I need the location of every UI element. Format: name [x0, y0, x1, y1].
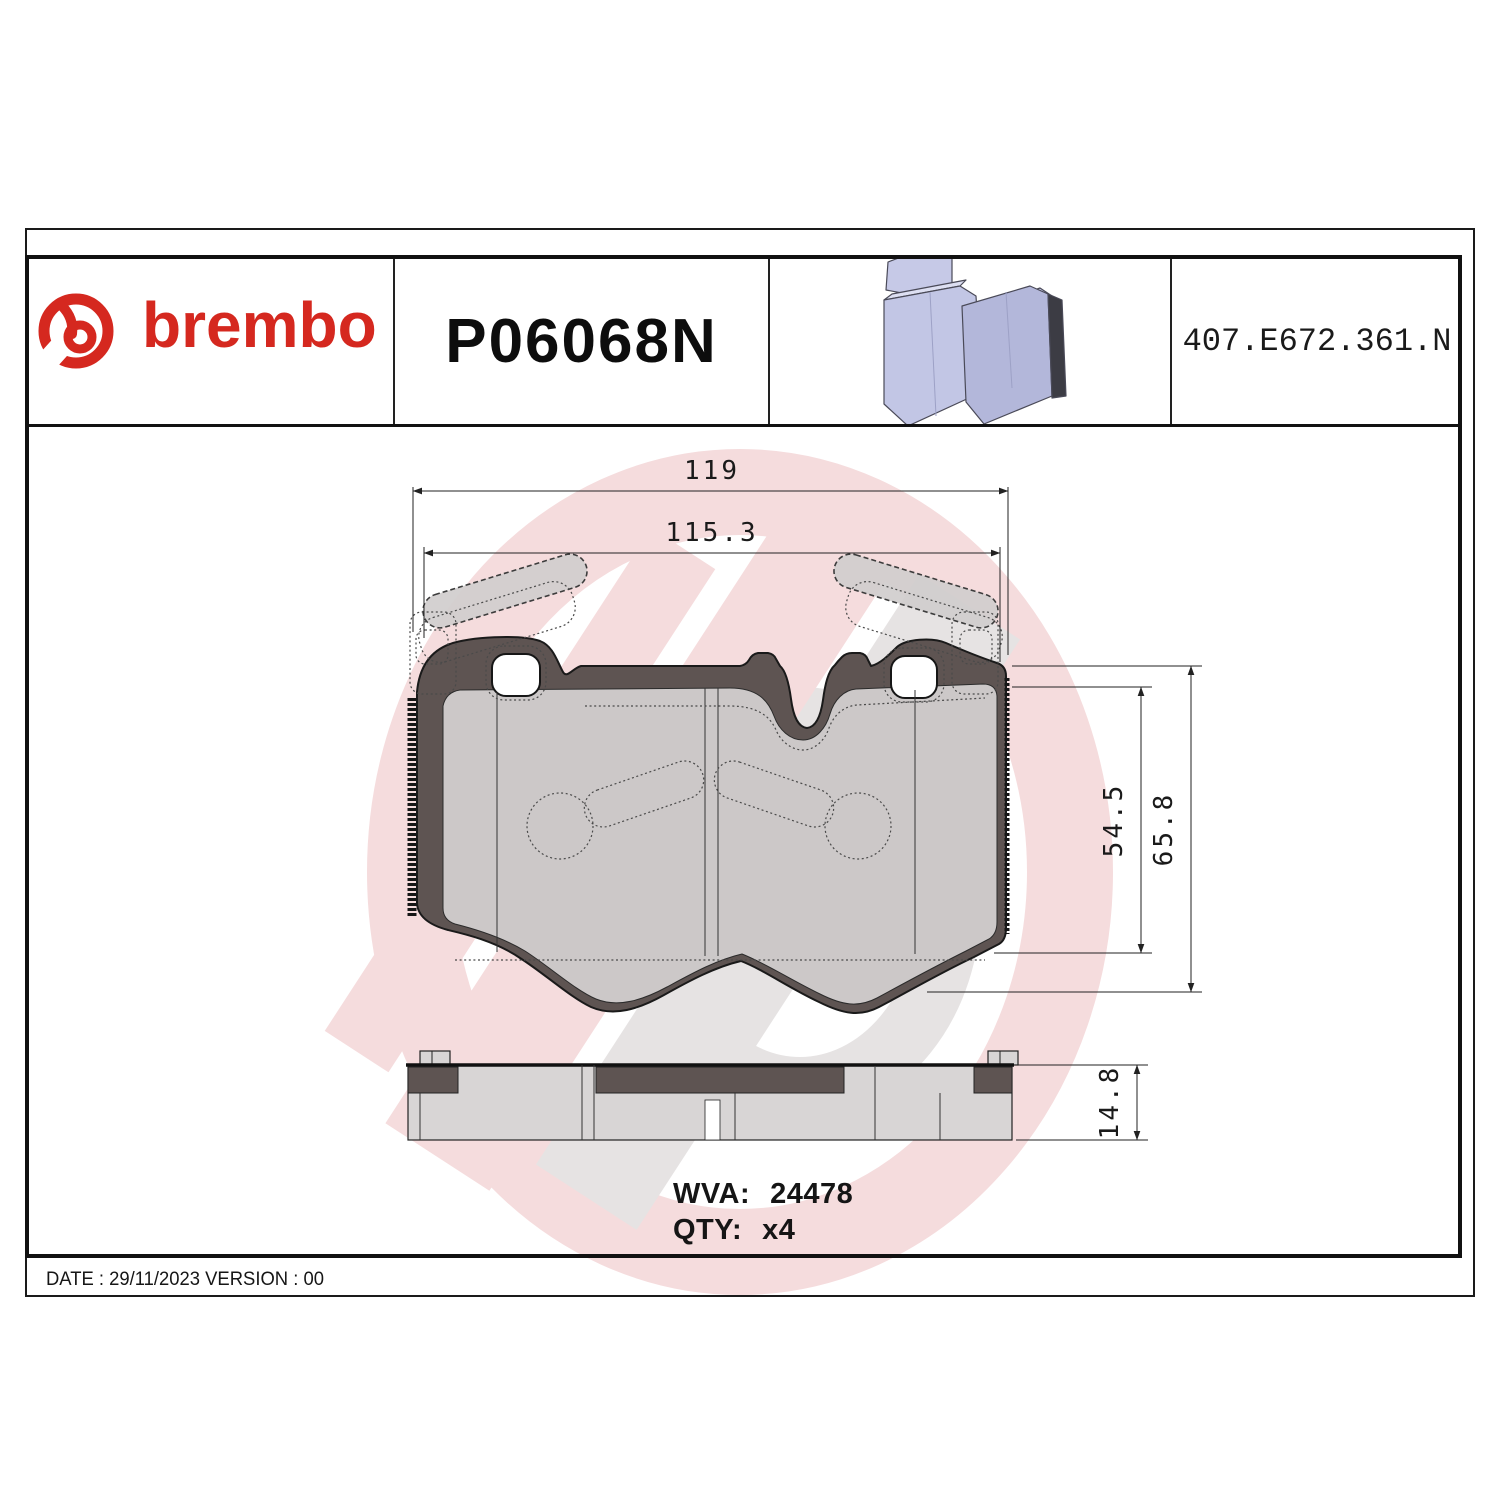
wva-value: 24478	[770, 1178, 853, 1210]
pad-meta-block: WVA: 24478 QTY: x4	[673, 1178, 853, 1250]
wva-label: WVA:	[673, 1178, 750, 1210]
wva-row: WVA: 24478	[673, 1178, 853, 1210]
catalog-code: 407.E672.361.N	[1183, 323, 1452, 360]
datasheet-page: 119 115.3 54.5 65.8 14.8 brembo P06068N	[0, 0, 1500, 1500]
part-number-cell: P06068N	[395, 259, 768, 424]
brake-pad-3d-icon	[768, 259, 1170, 424]
brembo-logo-icon	[36, 290, 118, 372]
qty-value: x4	[762, 1214, 795, 1246]
part-number: P06068N	[445, 306, 718, 377]
title-block-bottom-rule	[25, 424, 1462, 427]
brand-wordmark: brembo	[142, 288, 377, 362]
catalog-code-cell: 407.E672.361.N	[1172, 259, 1462, 424]
footer-date-version: DATE : 29/11/2023 VERSION : 00	[46, 1269, 324, 1291]
qty-row: QTY: x4	[673, 1214, 853, 1246]
qty-label: QTY:	[673, 1214, 742, 1246]
